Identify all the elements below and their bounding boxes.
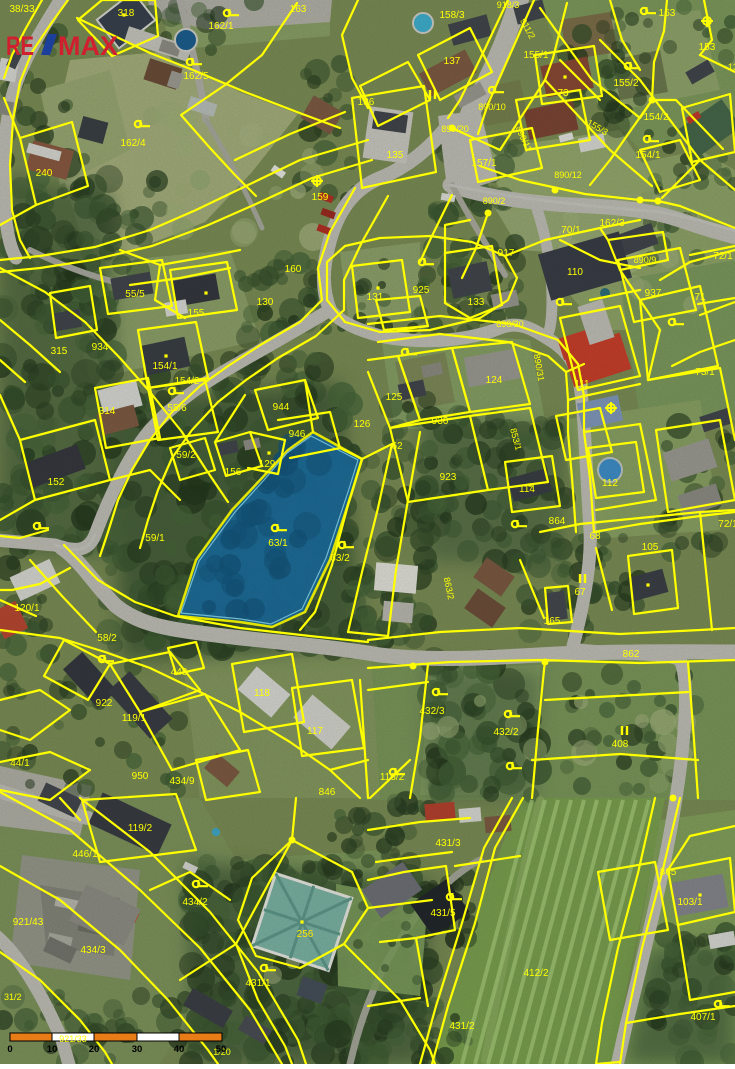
svg-text:890/2: 890/2	[483, 196, 506, 206]
svg-text:865: 865	[660, 867, 677, 878]
svg-text:921/43: 921/43	[13, 917, 44, 928]
svg-text:MAX: MAX	[58, 31, 118, 61]
svg-text:71: 71	[694, 292, 706, 303]
svg-text:155: 155	[188, 308, 205, 319]
svg-text:154/2: 154/2	[174, 376, 199, 387]
svg-text:162/1: 162/1	[208, 21, 233, 32]
svg-text:73/1: 73/1	[695, 367, 715, 378]
svg-text:126: 126	[354, 419, 371, 430]
svg-text:0: 0	[7, 1044, 12, 1055]
svg-text:846: 846	[319, 787, 336, 798]
svg-text:890/12: 890/12	[554, 170, 582, 180]
svg-text:407/1: 407/1	[690, 1012, 715, 1023]
svg-text:921/33: 921/33	[59, 1034, 87, 1044]
svg-text:72/1: 72/1	[718, 519, 735, 530]
svg-text:154/2: 154/2	[643, 112, 668, 123]
svg-text:434/9: 434/9	[169, 776, 194, 787]
svg-text:256: 256	[297, 929, 314, 940]
svg-text:20: 20	[89, 1044, 100, 1055]
svg-text:50: 50	[216, 1044, 227, 1055]
svg-text:431/5: 431/5	[430, 908, 455, 919]
svg-text:431/2: 431/2	[449, 1021, 474, 1032]
svg-text:408: 408	[612, 739, 629, 750]
svg-text:63/1: 63/1	[268, 538, 288, 549]
svg-text:59/1: 59/1	[145, 533, 165, 544]
svg-text:950: 950	[132, 771, 149, 782]
svg-text:112: 112	[602, 478, 618, 489]
svg-text:135: 135	[387, 150, 404, 161]
svg-text:240: 240	[36, 168, 53, 179]
svg-text:446/1: 446/1	[72, 849, 97, 860]
svg-text:918/3: 918/3	[497, 0, 520, 10]
svg-text:159: 159	[312, 192, 329, 203]
svg-text:67: 67	[574, 587, 586, 598]
svg-text:136: 136	[358, 97, 375, 108]
svg-text:890/9: 890/9	[634, 255, 657, 265]
svg-text:119/1: 119/1	[122, 713, 147, 724]
svg-text:154/1: 154/1	[635, 150, 660, 161]
svg-text:124: 124	[486, 375, 503, 386]
svg-text:131: 131	[367, 292, 384, 303]
svg-text:RE: RE	[6, 31, 34, 61]
svg-text:13: 13	[728, 62, 735, 72]
svg-text:44/1: 44/1	[10, 758, 30, 769]
svg-text:434/3: 434/3	[80, 945, 105, 956]
svg-text:934: 934	[92, 342, 109, 353]
svg-text:118: 118	[254, 688, 270, 699]
svg-text:110: 110	[567, 267, 583, 278]
svg-text:153: 153	[699, 42, 716, 53]
svg-text:73: 73	[557, 88, 569, 99]
svg-text:58/2: 58/2	[97, 633, 117, 644]
svg-text:10: 10	[47, 1044, 58, 1055]
svg-text:120/1: 120/1	[14, 603, 39, 614]
svg-text:154/1: 154/1	[152, 361, 177, 372]
svg-text:70/1: 70/1	[561, 225, 581, 236]
svg-text:890/10: 890/10	[478, 102, 506, 112]
svg-text:314: 314	[99, 406, 116, 417]
svg-text:72/1: 72/1	[713, 251, 733, 262]
svg-text:864: 864	[549, 516, 566, 527]
svg-text:937: 937	[645, 288, 662, 299]
svg-text:160: 160	[285, 264, 302, 275]
svg-text:946: 946	[289, 429, 306, 440]
svg-text:55/5: 55/5	[125, 289, 145, 300]
svg-text:103/1: 103/1	[677, 897, 702, 908]
svg-text:890/20: 890/20	[441, 124, 469, 134]
svg-text:40: 40	[174, 1044, 185, 1055]
svg-text:163: 163	[659, 8, 676, 19]
svg-text:923: 923	[440, 472, 457, 483]
svg-text:165: 165	[544, 616, 561, 627]
svg-text:162/4: 162/4	[120, 138, 145, 149]
svg-text:63/2: 63/2	[330, 553, 350, 564]
svg-text:448: 448	[171, 667, 188, 678]
svg-text:432/3: 432/3	[419, 706, 444, 717]
svg-text:117: 117	[307, 726, 323, 737]
svg-text:163: 163	[290, 4, 307, 15]
svg-text:431/3: 431/3	[435, 838, 460, 849]
svg-text:890/30: 890/30	[496, 319, 524, 329]
svg-text:157/1: 157/1	[471, 158, 496, 169]
svg-text:152: 152	[48, 477, 65, 488]
svg-text:130: 130	[257, 297, 274, 308]
svg-text:55/6: 55/6	[167, 403, 187, 414]
svg-text:432/2: 432/2	[493, 727, 518, 738]
svg-text:158/3: 158/3	[439, 10, 464, 21]
svg-text:137: 137	[444, 56, 461, 67]
svg-text:59/2: 59/2	[176, 450, 196, 461]
svg-text:119/2: 119/2	[128, 823, 153, 834]
svg-text:155/1: 155/1	[523, 50, 548, 61]
svg-text:125: 125	[386, 392, 403, 403]
svg-text:318: 318	[118, 8, 135, 19]
svg-text:925: 925	[413, 285, 430, 296]
svg-text:434/2: 434/2	[182, 897, 207, 908]
svg-text:68: 68	[589, 531, 601, 542]
svg-text:944: 944	[273, 402, 290, 413]
svg-text:114: 114	[519, 484, 535, 495]
svg-text:162/5: 162/5	[183, 71, 208, 82]
svg-text:917: 917	[498, 248, 515, 259]
svg-text:111: 111	[574, 379, 590, 390]
svg-text:133: 133	[468, 297, 485, 308]
svg-text:862: 862	[623, 649, 640, 660]
svg-text:155/2: 155/2	[613, 78, 638, 89]
svg-text:922: 922	[96, 698, 113, 709]
svg-text:431/1: 431/1	[245, 978, 270, 989]
svg-text:936: 936	[432, 416, 449, 427]
svg-text:315: 315	[51, 346, 68, 357]
svg-text:62: 62	[391, 441, 403, 452]
svg-text:162/3: 162/3	[599, 218, 624, 229]
svg-text:156: 156	[225, 467, 242, 478]
svg-text:31/2: 31/2	[4, 992, 22, 1002]
svg-text:129: 129	[259, 459, 276, 470]
svg-text:105: 105	[642, 542, 659, 553]
svg-text:30: 30	[132, 1044, 143, 1055]
svg-text:38/33: 38/33	[9, 4, 34, 15]
svg-text:412/2: 412/2	[523, 968, 548, 979]
